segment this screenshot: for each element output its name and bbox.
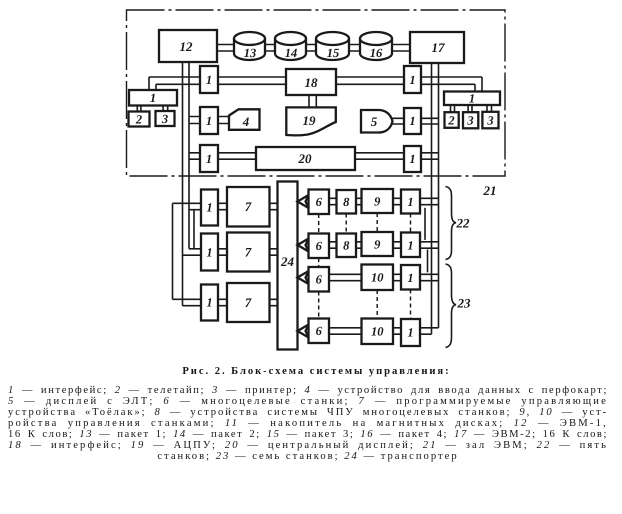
svg-text:21: 21 (483, 183, 497, 198)
svg-text:18: 18 (305, 75, 319, 90)
svg-text:17: 17 (432, 40, 446, 55)
svg-text:1: 1 (409, 114, 415, 128)
svg-text:14: 14 (285, 46, 298, 60)
svg-text:16: 16 (370, 46, 383, 60)
svg-text:5: 5 (371, 114, 378, 129)
svg-text:6: 6 (316, 324, 323, 338)
svg-text:7: 7 (245, 199, 252, 214)
svg-text:6: 6 (316, 195, 323, 209)
svg-text:1: 1 (206, 152, 212, 166)
svg-text:1: 1 (206, 73, 212, 87)
svg-text:6: 6 (316, 239, 323, 253)
svg-text:9: 9 (374, 195, 381, 209)
svg-text:1: 1 (469, 92, 475, 106)
svg-text:1: 1 (206, 246, 212, 260)
svg-text:22: 22 (456, 216, 471, 231)
svg-text:6: 6 (316, 273, 323, 287)
svg-text:10: 10 (371, 271, 384, 285)
svg-text:1: 1 (409, 73, 415, 87)
svg-text:1: 1 (206, 114, 212, 128)
svg-text:15: 15 (327, 46, 340, 60)
svg-text:8: 8 (343, 195, 350, 209)
svg-text:1: 1 (150, 91, 156, 105)
svg-text:7: 7 (245, 245, 252, 260)
svg-text:10: 10 (371, 325, 384, 339)
svg-text:3: 3 (486, 114, 493, 128)
svg-text:9: 9 (374, 238, 381, 252)
svg-text:3: 3 (161, 112, 168, 126)
svg-text:3: 3 (466, 114, 473, 128)
svg-text:1: 1 (206, 296, 212, 310)
svg-text:13: 13 (244, 46, 257, 60)
svg-text:20: 20 (298, 151, 313, 166)
svg-text:1: 1 (407, 195, 413, 209)
svg-text:7: 7 (245, 295, 252, 310)
svg-text:1: 1 (409, 152, 415, 166)
svg-text:24: 24 (280, 254, 295, 269)
svg-text:1: 1 (407, 271, 413, 285)
svg-text:4: 4 (242, 114, 250, 129)
svg-text:23: 23 (457, 296, 472, 311)
svg-text:1: 1 (407, 239, 413, 253)
svg-text:1: 1 (407, 326, 413, 340)
svg-text:19: 19 (303, 113, 317, 128)
svg-text:12: 12 (180, 39, 194, 54)
svg-text:8: 8 (343, 239, 350, 253)
svg-text:1: 1 (206, 201, 212, 215)
svg-text:2: 2 (447, 114, 454, 128)
svg-text:2: 2 (135, 113, 142, 127)
